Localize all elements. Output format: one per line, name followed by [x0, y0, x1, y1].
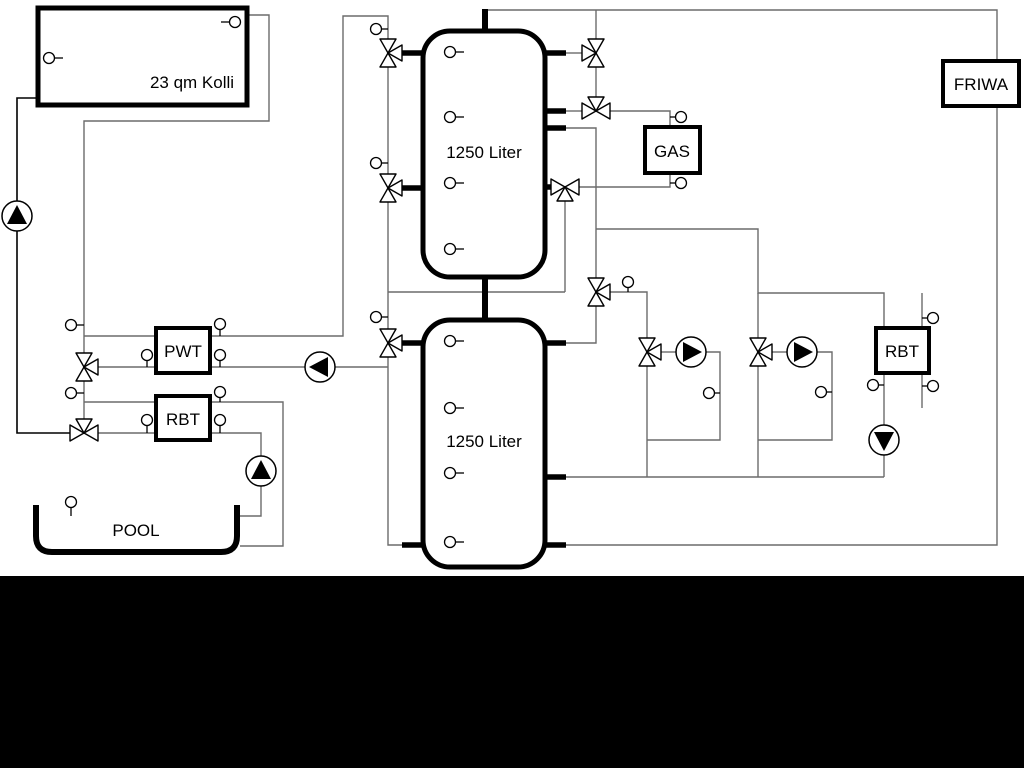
- three-way-valve-gas-supply-icon: [582, 97, 610, 119]
- pipe-top-header-friwa: [485, 10, 997, 545]
- temp-sensor-icon: [868, 380, 885, 391]
- pipe-solar-return: [17, 98, 70, 433]
- pipe-gas-supply: [610, 111, 670, 127]
- collector-label: 23 qm Kolli: [150, 73, 234, 92]
- tank1-label: 1250 Liter: [446, 143, 522, 162]
- temp-sensor-icon: [66, 320, 85, 331]
- temp-sensor-icon: [66, 388, 85, 399]
- three-way-valve-gas-return-icon: [551, 179, 579, 201]
- hydraulic-schematic: 23 qm Kolli 1250 Liter 1250 Liter PWT RB…: [0, 0, 1024, 768]
- pool-pump-icon: [246, 456, 276, 486]
- three-way-valve-circuit2-icon: [750, 338, 772, 366]
- three-way-valve-solar-pool-icon: [70, 419, 98, 441]
- three-way-valve-tank1-mid-icon: [380, 174, 402, 202]
- temp-sensor-icon: [142, 415, 153, 434]
- temp-sensor-icon: [371, 24, 389, 35]
- pipe-gas-return: [579, 173, 670, 187]
- three-way-valve-distribution-icon: [588, 278, 610, 306]
- pipe-supply-header: [596, 229, 884, 328]
- temp-sensor-icon: [215, 415, 226, 434]
- temp-sensor-icon: [66, 497, 77, 517]
- temp-sensor-icon: [670, 178, 687, 189]
- temp-sensor-icon: [371, 158, 389, 169]
- pipe-distribution-riser: [566, 128, 596, 278]
- temp-sensor-icon: [215, 387, 226, 403]
- three-way-valve-tank2-icon: [380, 329, 402, 357]
- rbt-right-pump-icon: [869, 425, 899, 455]
- pipe-circuit1-feed: [610, 292, 647, 338]
- solar-pump-icon: [2, 201, 32, 231]
- bottom-black-band: [0, 576, 1024, 768]
- temp-sensor-icon: [371, 312, 389, 323]
- temp-sensor-icon: [816, 387, 833, 398]
- tank2-label: 1250 Liter: [446, 432, 522, 451]
- pool-label: POOL: [112, 521, 159, 540]
- rbt-right-label: RBT: [885, 342, 919, 361]
- three-way-valve-tank1-right-icon: [582, 39, 604, 67]
- three-way-valve-circuit1-icon: [639, 338, 661, 366]
- friwa-label: FRIWA: [954, 75, 1009, 94]
- temp-sensor-icon: [922, 313, 939, 324]
- temp-sensor-icon: [704, 388, 721, 399]
- temp-sensor-icon: [215, 350, 226, 368]
- pwt-label: PWT: [164, 342, 202, 361]
- pipe-valve9-to-tank2: [566, 306, 596, 343]
- gas-label: GAS: [654, 142, 690, 161]
- temp-sensor-icon: [670, 112, 687, 123]
- schematic-canvas: 23 qm Kolli 1250 Liter 1250 Liter PWT RB…: [0, 0, 1024, 768]
- pwt-pump-icon: [305, 352, 335, 382]
- rbt-left-label: RBT: [166, 410, 200, 429]
- heating-circuit-1-pump-icon: [676, 337, 706, 367]
- three-way-valve-solar-pwt-icon: [76, 353, 98, 381]
- temp-sensor-icon: [142, 350, 153, 368]
- temp-sensor-icon: [623, 277, 634, 293]
- temp-sensor-icon: [922, 381, 939, 392]
- temp-sensor-icon: [215, 319, 226, 337]
- three-way-valve-tank1-top-icon: [380, 39, 402, 67]
- heating-circuit-2-pump-icon: [787, 337, 817, 367]
- pipe-tank2-left-bottom: [388, 357, 402, 545]
